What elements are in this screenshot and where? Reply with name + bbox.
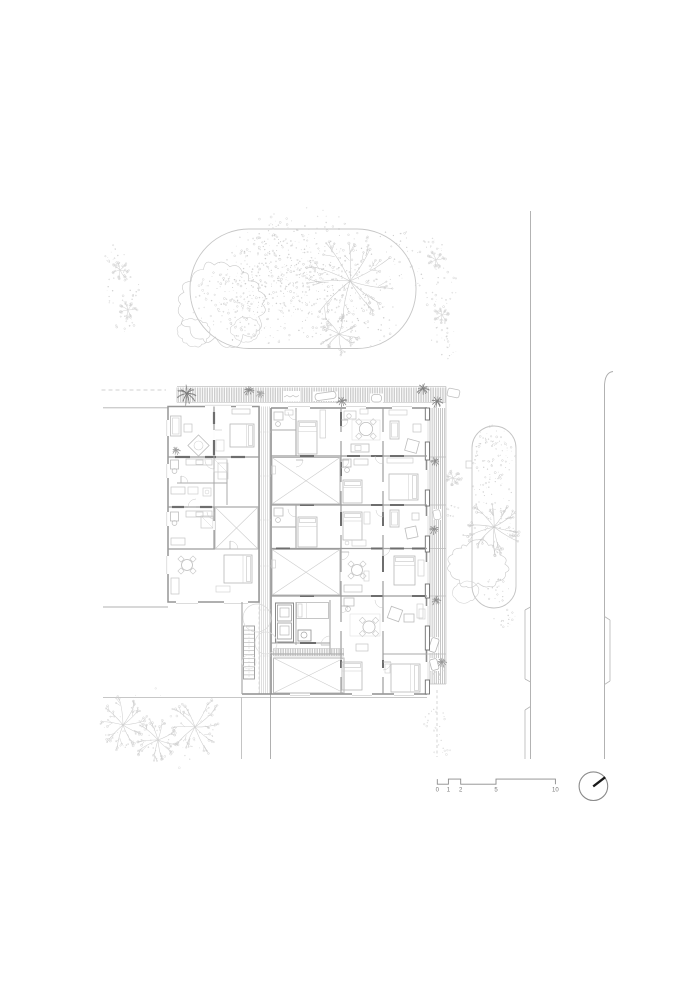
svg-text:10: 10	[552, 788, 559, 794]
